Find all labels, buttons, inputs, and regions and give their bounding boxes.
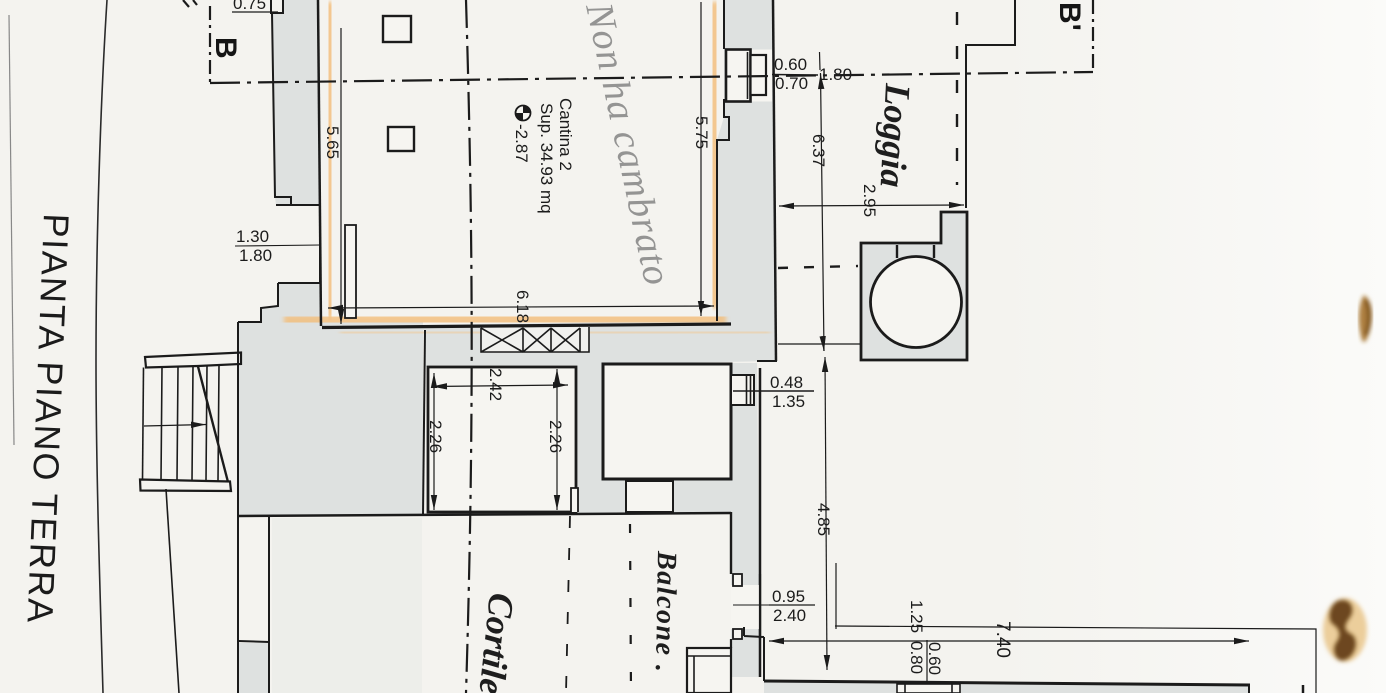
svg-text:0.95: 0.95 <box>772 587 805 606</box>
svg-text:0.60: 0.60 <box>774 55 807 74</box>
svg-text:1.80: 1.80 <box>239 246 272 265</box>
svg-text:Loggia: Loggia <box>873 82 918 189</box>
svg-text:6.37: 6.37 <box>809 134 828 167</box>
svg-text:2.26: 2.26 <box>426 420 445 453</box>
svg-text:5.75: 5.75 <box>692 116 711 149</box>
svg-text:0.75: 0.75 <box>233 0 266 13</box>
svg-text:Balcone .: Balcone . <box>649 550 682 674</box>
svg-text:6.18: 6.18 <box>513 290 532 323</box>
svg-text:Cantina 2: Cantina 2 <box>556 98 575 171</box>
svg-text:2.95: 2.95 <box>860 184 879 217</box>
svg-text:1.30: 1.30 <box>236 227 269 246</box>
svg-text:5.65: 5.65 <box>323 126 342 159</box>
svg-text:0.70: 0.70 <box>775 74 808 93</box>
svg-text:2.26: 2.26 <box>546 420 565 453</box>
svg-text:1.25: 1.25 <box>907 600 926 633</box>
svg-text:-2.87: -2.87 <box>512 124 531 163</box>
svg-text:Sup. 34.93 mq: Sup. 34.93 mq <box>537 103 556 214</box>
svg-text:0.60: 0.60 <box>925 642 944 675</box>
svg-text:B': B' <box>1053 2 1086 31</box>
svg-text:7.40: 7.40 <box>992 621 1013 658</box>
svg-text:0.80: 0.80 <box>907 641 926 674</box>
svg-text:1.80: 1.80 <box>819 65 852 84</box>
svg-text:4.85: 4.85 <box>814 503 833 536</box>
svg-text:0.48: 0.48 <box>770 373 803 392</box>
svg-text:2.42: 2.42 <box>486 368 505 401</box>
svg-text:2.40: 2.40 <box>773 606 806 625</box>
svg-text:B: B <box>209 37 242 59</box>
svg-text:1.35: 1.35 <box>772 392 805 411</box>
